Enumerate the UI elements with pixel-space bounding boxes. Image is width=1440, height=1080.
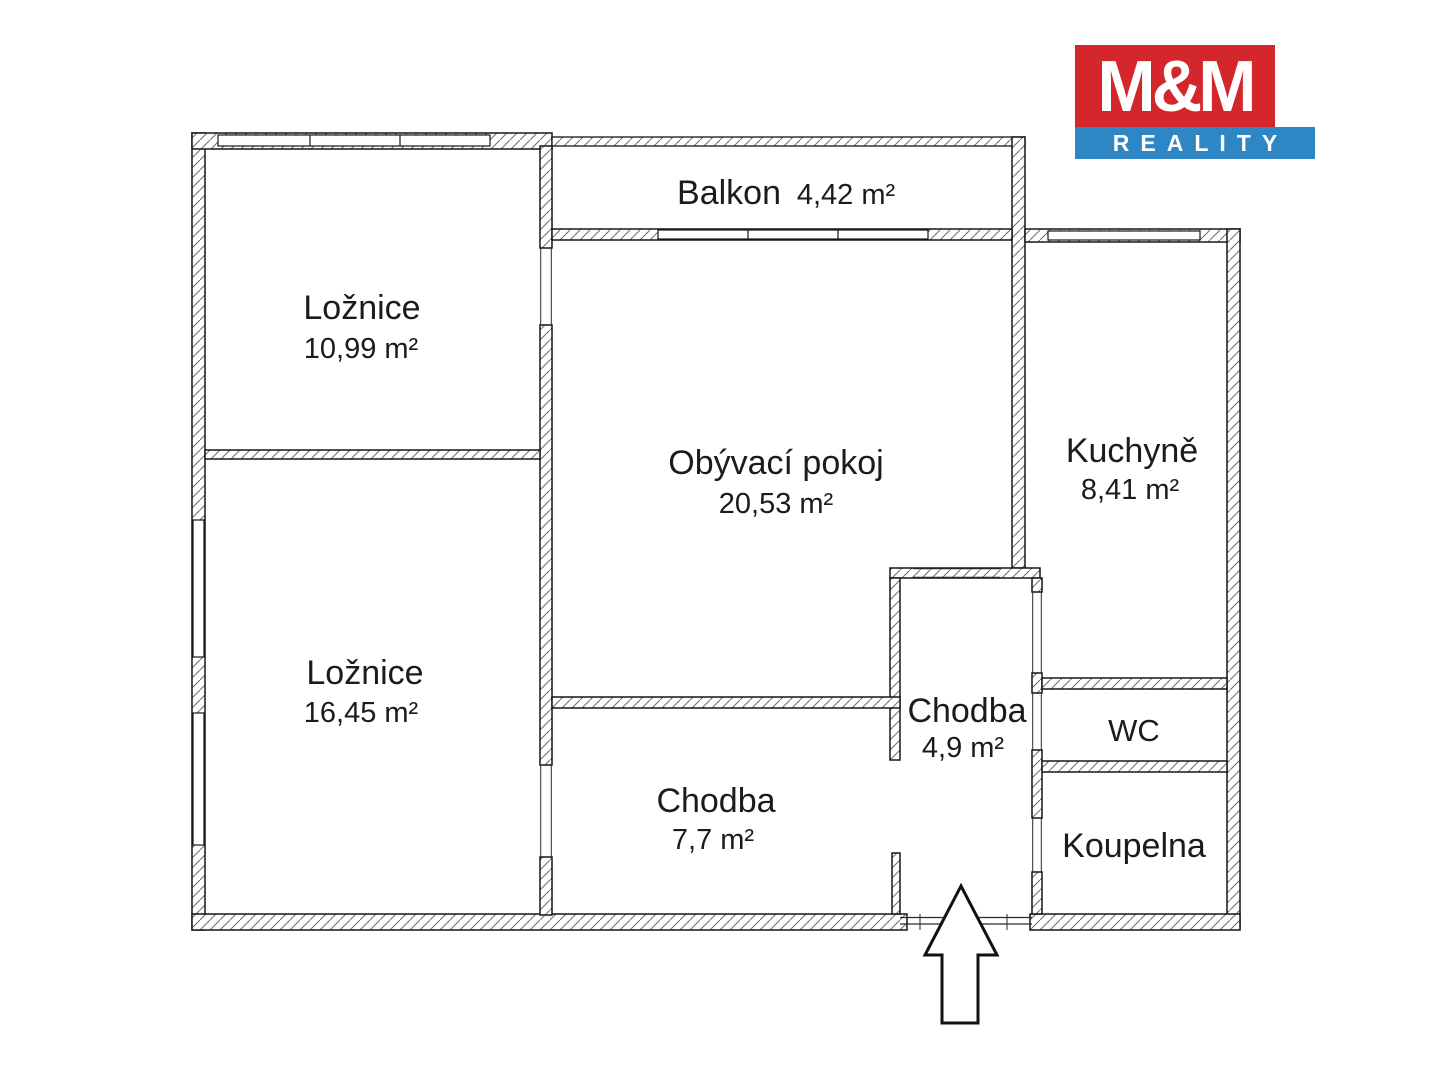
wall-hall-small-left — [890, 578, 900, 760]
wall-bedroom-divider — [205, 450, 540, 459]
window-kitchen — [1048, 231, 1200, 240]
wall-central-middle — [540, 325, 552, 765]
wall-utility-seg3 — [1032, 750, 1042, 818]
logo-reality-badge: REALITY — [1075, 127, 1315, 159]
wall-exterior-right — [1227, 229, 1240, 928]
wall-utility-seg2 — [1032, 673, 1042, 693]
wall-entry-stub — [892, 853, 900, 914]
room-area-chodba-mala: 4,9 m² — [922, 732, 1005, 764]
wall-utility-seg1 — [1032, 578, 1042, 592]
room-area-kuchyne: 8,41 m² — [1081, 474, 1180, 506]
room-label-loznice-dolni: Ložnice — [306, 654, 423, 692]
room-area-chodba-velka: 7,7 m² — [672, 824, 755, 856]
room-area-obyvaci-pokoj: 20,53 m² — [719, 488, 834, 520]
room-label-chodba-mala: Chodba — [907, 692, 1026, 730]
room-area-loznice-horni: 10,99 m² — [304, 333, 419, 365]
window-bedroom-top — [218, 135, 490, 146]
door-openings — [541, 248, 1042, 872]
logo-reality-text: REALITY — [1102, 132, 1288, 155]
wall-central-upper — [540, 146, 552, 248]
entrance — [900, 886, 1032, 1023]
room-label-loznice-horni: Ložnice — [303, 289, 420, 327]
wall-hall-small-top — [890, 568, 1040, 578]
floor-plan: Balkon 4,42 m² Ložnice 10,99 m² Obývací … — [0, 0, 1440, 1080]
room-label-wc: WC — [1108, 713, 1160, 748]
wall-balcony-top — [552, 137, 1025, 146]
logo-mm-badge: M&M — [1075, 45, 1275, 127]
room-label-balkon: Balkon — [677, 174, 781, 212]
wall-hall-big-top — [552, 697, 900, 708]
wall-central-lower — [540, 857, 552, 915]
wall-wc-bottom — [1042, 761, 1227, 772]
room-label-kuchyne: Kuchyně — [1066, 432, 1198, 470]
wall-wc-top — [1042, 678, 1227, 689]
agency-logo: M&M REALITY — [1075, 45, 1315, 158]
window-balcony-door — [658, 230, 928, 239]
window-left-lower — [193, 713, 204, 845]
logo-mm-text: M&M — [1097, 50, 1252, 123]
wall-exterior-bottom-right — [1030, 914, 1240, 930]
floorplan-page: Balkon 4,42 m² Ložnice 10,99 m² Obývací … — [0, 0, 1440, 1080]
entrance-arrow-icon — [925, 886, 997, 1023]
room-label-koupelna: Koupelna — [1062, 827, 1206, 865]
window-left-upper — [193, 520, 204, 657]
wall-utility-seg4 — [1032, 872, 1042, 914]
room-label-obyvaci-pokoj: Obývací pokoj — [668, 444, 883, 482]
wall-balcony-right-kitchen-divider — [1012, 137, 1025, 568]
wall-exterior-bottom-left — [192, 914, 907, 930]
room-area-balkon: 4,42 m² — [797, 179, 896, 211]
room-label-chodba-velka: Chodba — [656, 782, 775, 820]
room-area-loznice-dolni: 16,45 m² — [304, 697, 419, 729]
